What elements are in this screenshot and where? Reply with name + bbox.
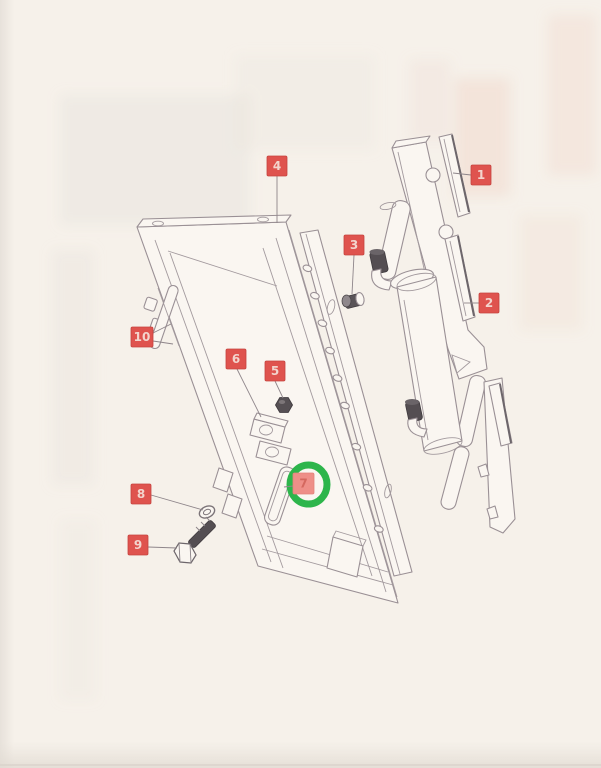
catalog-page-photo: 12345678910 [0,0,601,768]
part-nut [276,398,293,413]
label-number: 3 [350,238,358,252]
label-number: 10 [134,330,151,344]
label-number: 7 [299,477,307,491]
label-number: 6 [232,352,240,366]
label-number: 1 [477,168,485,182]
label-number: 4 [273,159,281,173]
label-number: 5 [271,364,279,378]
elbow-cap-upper [370,249,385,255]
label-number: 8 [137,487,145,501]
elbow-cap-lower [405,399,419,405]
exploded-diagram: 12345678910 [0,0,601,768]
label-number: 2 [485,296,493,310]
label-number: 9 [134,538,142,552]
